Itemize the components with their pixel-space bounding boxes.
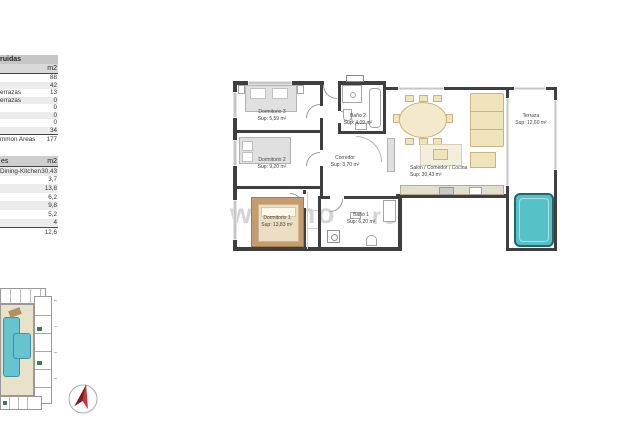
kitchen-counter-icon (400, 185, 504, 195)
table-row: 34 (0, 127, 58, 135)
room-area: Sup: 3,70 m² (326, 162, 364, 169)
table-row: 0 (0, 112, 58, 120)
chair-icon (405, 138, 414, 145)
site-green-accent (37, 361, 42, 365)
table-row: 3,7 (0, 176, 58, 185)
site-tick (54, 300, 57, 301)
site-pool (13, 333, 31, 359)
window (233, 140, 237, 166)
wall-segment (233, 130, 323, 133)
sofa-cushion-line (471, 129, 503, 130)
wall-segment (506, 248, 557, 251)
row-value: 13,8 (45, 185, 57, 192)
row-value: 42 (50, 82, 57, 89)
row-label: errazas (0, 89, 21, 96)
table-row: 5,2 (0, 210, 58, 219)
site-tick (54, 352, 57, 353)
wall-segment (233, 186, 323, 189)
room-area: Sup: 5,59 m² (246, 116, 298, 123)
dining-table-icon (399, 102, 447, 138)
wall-segment (398, 196, 402, 251)
site-tick (54, 378, 57, 379)
site-green-accent (3, 401, 7, 405)
table-row: 9,8 (0, 201, 58, 210)
room-area: Sup: 30,43 m² (410, 172, 482, 179)
site-line (35, 369, 51, 370)
row-value: 0 (53, 119, 57, 126)
site-line (10, 289, 11, 303)
wall-segment (318, 196, 321, 251)
door-arc (330, 199, 343, 212)
window (398, 87, 444, 90)
row-value: 12,6 (45, 229, 57, 236)
site-line (35, 351, 51, 352)
door-arc (323, 85, 337, 99)
shower-icon (383, 200, 396, 222)
site-line (18, 397, 19, 409)
sliding-door-window (506, 98, 509, 186)
room-label-bano2: Baño 2 Sup: 4,09 m² (340, 113, 376, 126)
closet-line (307, 210, 318, 211)
door-arc (306, 104, 320, 118)
site-line (27, 397, 28, 409)
table-row: 42 (0, 82, 58, 90)
useful-areas-header: es m2 (0, 156, 58, 167)
hob-icon (439, 187, 454, 195)
kitchen-sink-icon (469, 187, 482, 195)
pool-inner-line (519, 198, 549, 242)
wall-segment (303, 190, 306, 194)
row-value: 9,8 (48, 202, 57, 209)
shower-icon (342, 85, 362, 103)
wall-segment (383, 81, 386, 134)
row-value: 0 (53, 112, 57, 119)
sofa-icon (470, 93, 504, 147)
table-row: 0 (0, 104, 58, 112)
row-value: 88 (50, 74, 57, 81)
unit-header-text: m2 (47, 65, 57, 72)
useful-areas-rows: Dining-Kitchen30,43 3,7 13,8 6,2 9,8 5,2… (0, 167, 58, 237)
table-row: 6,2 (0, 193, 58, 202)
site-line (35, 387, 51, 388)
closet-line (307, 192, 308, 249)
closet-line (307, 228, 318, 229)
table-row: errazas0 (0, 97, 58, 105)
row-value: 0 (53, 97, 57, 104)
table-row: 0 (0, 119, 58, 127)
site-plan (0, 286, 60, 416)
bed-icon (245, 85, 297, 112)
chair-icon (393, 114, 400, 123)
room-area: Sup: 6,20 m² (342, 219, 380, 226)
window (233, 200, 237, 240)
table-row: 13,8 (0, 184, 58, 193)
drain-icon (350, 92, 356, 98)
chair-icon (433, 95, 442, 102)
sofa-cushion-line (471, 111, 503, 112)
table-total-row: mmon Areas177 (0, 134, 58, 144)
unit-header-text: m2 (47, 158, 57, 165)
wall-segment (338, 81, 341, 111)
pillow-icon (272, 88, 288, 99)
total-value: 177 (46, 136, 57, 143)
built-areas-unit-header: m2 (0, 64, 58, 74)
built-areas-rows: 88 42 errazas13 errazas0 0 0 0 34 mmon A… (0, 74, 58, 144)
site-line (35, 333, 51, 334)
window (554, 100, 557, 170)
row-value: 5,2 (48, 211, 57, 218)
room-label-bano1: Baño 1 Sup: 6,20 m² (342, 212, 380, 225)
toilet-icon (366, 235, 377, 246)
wall-segment (338, 131, 386, 134)
row-value: 6,2 (48, 194, 57, 201)
room-area: Sup: 12,60 m² (508, 120, 554, 127)
site-units-bottom (0, 396, 42, 410)
row-value: 13 (50, 89, 57, 96)
room-label-dormitorio1: Dormitorio 1 Sup: 13,83 m² (252, 215, 302, 228)
wall-segment (320, 130, 323, 150)
row-value: 34 (50, 127, 57, 134)
table-extra-row: 12,6 (0, 227, 58, 237)
washer-icon (327, 230, 340, 243)
site-tick (54, 326, 57, 327)
floorplan-page: ruidas m2 88 42 errazas13 errazas0 0 0 0… (0, 0, 630, 430)
room-area: Sup: 4,09 m² (340, 120, 376, 127)
table-title-text: es (1, 158, 8, 165)
chair-icon (419, 95, 428, 102)
site-line (30, 289, 31, 303)
tv-unit-icon (387, 138, 395, 172)
total-label: mmon Areas (0, 136, 35, 143)
row-value: 4 (53, 219, 57, 226)
row-value: 3,7 (48, 176, 57, 183)
row-label: Dining-Kitchen (0, 168, 41, 175)
row-value: 0 (53, 104, 57, 111)
table-row: 4 (0, 219, 58, 228)
room-label-salon: Salón / Comedor / Cocina Sup: 30,43 m² (410, 165, 482, 178)
chair-icon (446, 114, 453, 123)
room-label-corredor: Corredor Sup: 3,70 m² (326, 155, 364, 168)
built-areas-table-title: ruidas (0, 55, 58, 64)
table-title-text: ruidas (0, 56, 21, 63)
site-courtyard (0, 304, 34, 396)
room-area: Sup: 9,20 m² (246, 164, 298, 171)
window (514, 87, 546, 90)
row-label: errazas (0, 97, 21, 104)
chair-icon (405, 95, 414, 102)
window (233, 92, 237, 118)
room-label-terraza: Terraza Sup: 12,60 m² (508, 113, 554, 126)
room-label-dormitorio3: Dormitorio 3 Sup: 5,59 m² (246, 109, 298, 122)
washer-door-icon (331, 234, 338, 241)
site-line (20, 289, 21, 303)
compass-icon (65, 381, 101, 417)
door-arc (306, 152, 320, 166)
nightstand-icon (238, 85, 245, 94)
shaft-box (346, 75, 364, 82)
table-row: errazas13 (0, 89, 58, 97)
pillow-icon (242, 141, 253, 151)
row-value: 30,43 (41, 168, 57, 175)
table-row: 88 (0, 74, 58, 82)
pillow-icon (250, 88, 266, 99)
site-line (35, 315, 51, 316)
site-green-accent (37, 327, 42, 331)
coffee-table-icon (433, 149, 448, 160)
room-area: Sup: 13,83 m² (252, 222, 302, 229)
site-units-right (34, 296, 52, 404)
nightstand-icon (297, 85, 304, 94)
wall-segment (344, 196, 402, 199)
site-line (9, 397, 10, 409)
plunge-pool-icon (514, 193, 554, 247)
table-row: Dining-Kitchen30,43 (0, 167, 58, 176)
room-label-dormitorio2: Dormitorio 2 Sup: 9,20 m² (246, 157, 298, 170)
